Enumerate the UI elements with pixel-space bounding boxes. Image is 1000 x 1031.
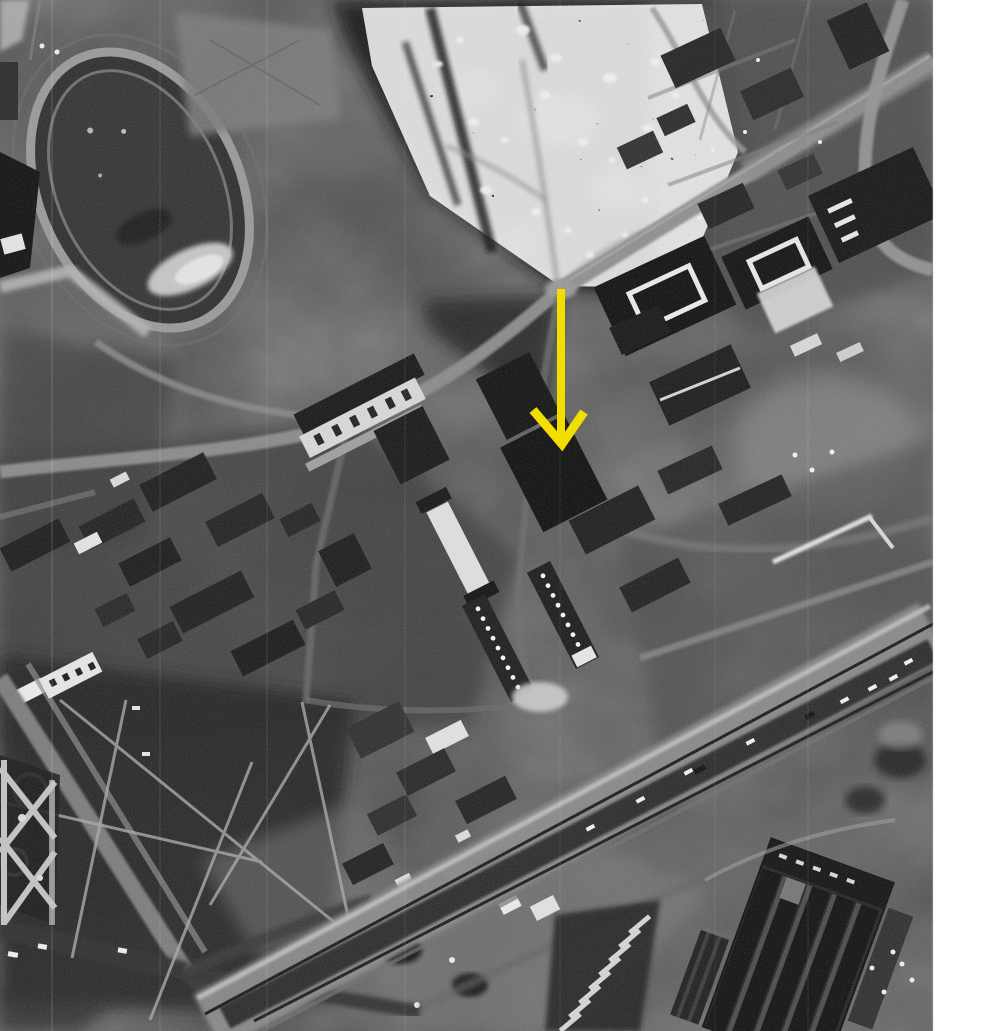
photo-margin: [933, 0, 1000, 1031]
screenshot-root: [0, 0, 1000, 1031]
aerial-photo: [0, 0, 1000, 1031]
photo-content: [0, 0, 944, 1031]
